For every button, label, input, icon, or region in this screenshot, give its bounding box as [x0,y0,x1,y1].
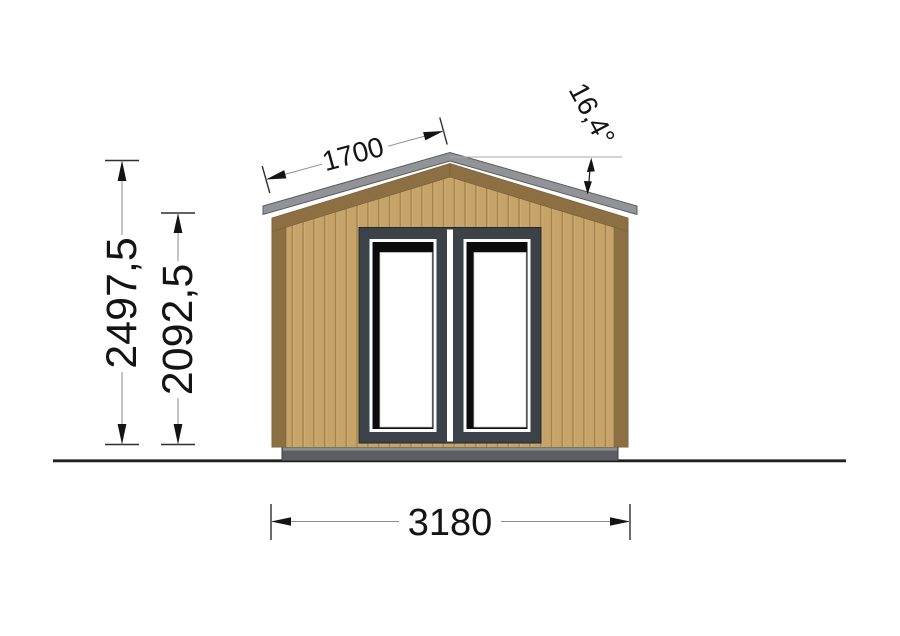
dim-total-width-label: 3180 [408,502,493,544]
door-leaf-right [464,239,531,432]
dim-total-height: 2497,5 [98,161,146,445]
door-leaf-left [370,239,437,432]
dim-roof-slope-label: 1700 [319,131,387,177]
dim-wall-height-label: 2092,5 [154,264,202,396]
corner-trim-right [614,218,628,447]
dim-total-height-label: 2497,5 [98,237,146,369]
corner-trim-left [272,218,286,447]
dim-total-width: 3180 [271,502,630,544]
dim-roof-angle-label: 16,4° [563,78,621,151]
cabin-elevation-drawing: 2497,5 2092,5 3180 1700 16,4° [0,0,900,636]
foundation-base [282,447,618,461]
double-door [359,228,541,444]
dim-wall-height: 2092,5 [154,213,202,445]
door-divider [447,230,453,442]
